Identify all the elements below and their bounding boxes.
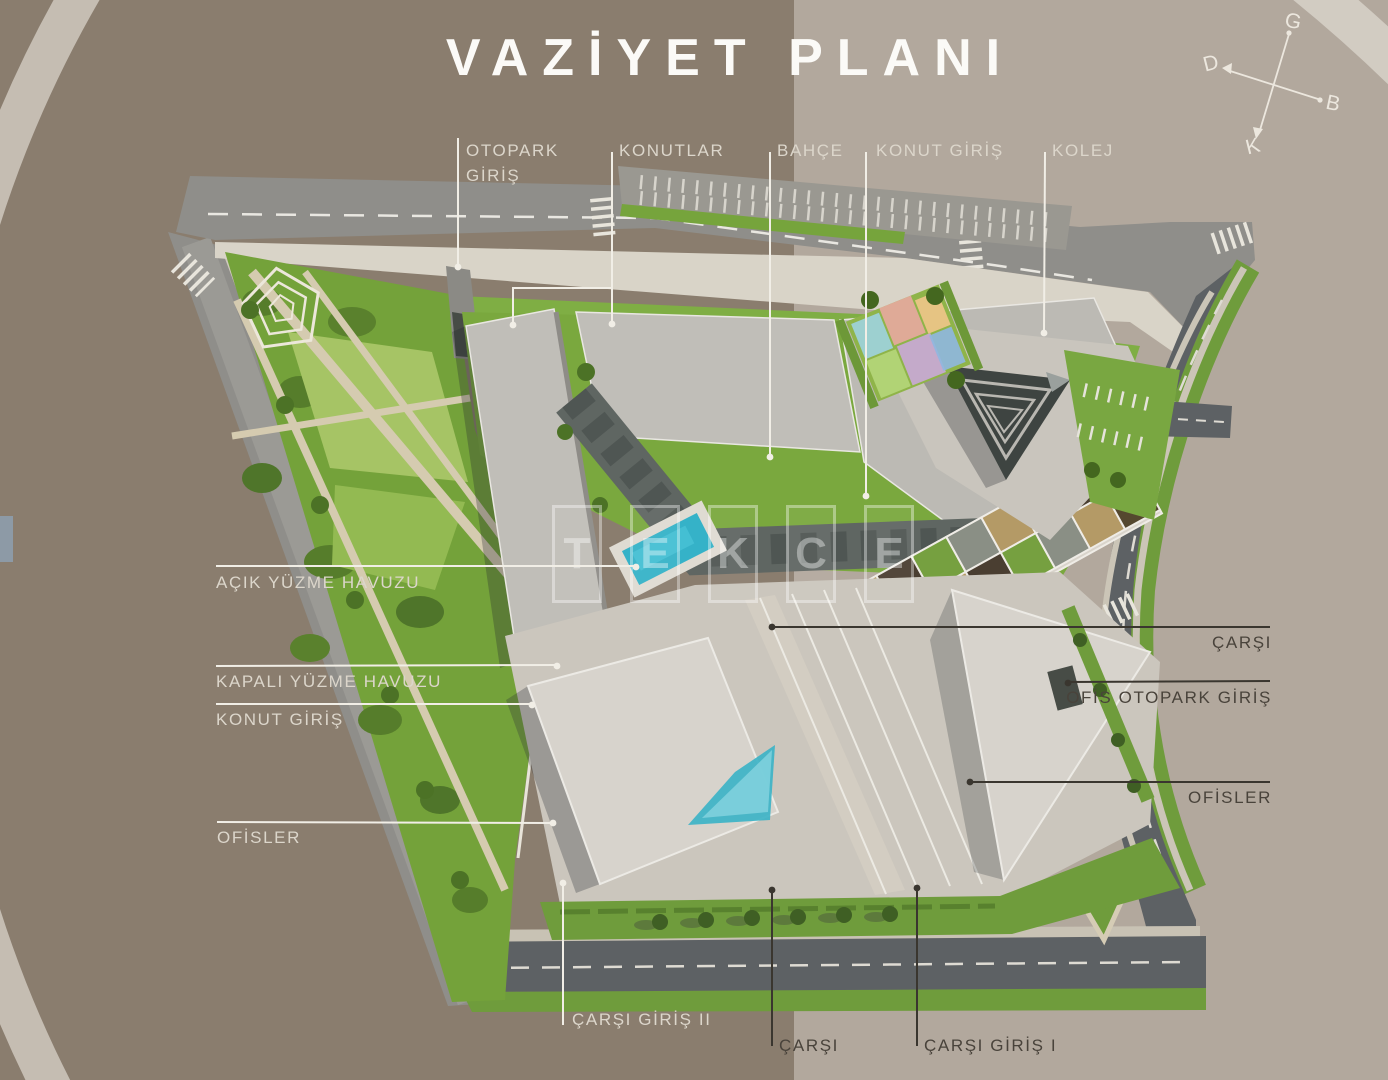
left-edge-tab [0, 516, 13, 562]
page-title: VAZİYET PLANI [440, 28, 1020, 88]
label-carsi-bottom: ÇARŞI [779, 1034, 839, 1059]
site-plan-page: T E K C E [0, 0, 1388, 1080]
watermark-letter-box: E [864, 505, 914, 603]
label-bahce: BAHÇE [777, 139, 844, 164]
park [225, 252, 548, 1002]
watermark-letter-box: K [708, 505, 758, 603]
left-road [168, 232, 508, 1006]
teal-canopy [688, 745, 775, 825]
label-otopark-giris: OTOPARK GİRİŞ [466, 139, 578, 188]
watermark: T E K C E [552, 505, 914, 603]
label-ofisler-right: OFİSLER [1188, 786, 1272, 811]
watermark-letter-box: C [786, 505, 836, 603]
label-kolej: KOLEJ [1052, 139, 1114, 164]
park-spiral-feature [239, 263, 325, 349]
watermark-letter-box: T [552, 505, 602, 603]
otopark-entrance-ramp [446, 266, 480, 360]
office-roof-west [528, 638, 778, 884]
label-konutlar: KONUTLAR [619, 139, 724, 164]
label-carsi-giris-1: ÇARŞI GİRİŞ I [924, 1034, 1057, 1059]
label-carsi-right: ÇARŞI [1212, 631, 1272, 656]
label-acik-yuzme-havuzu: AÇIK YÜZME HAVUZU [216, 571, 420, 596]
label-ofis-otopark-giris: OFİS OTOPARK GİRİŞ [1066, 686, 1272, 711]
label-konut-giris-left: KONUT GİRİŞ [216, 708, 344, 733]
label-carsi-giris-2: ÇARŞI GİRİŞ II [572, 1008, 712, 1033]
residential-roof-west [466, 309, 608, 662]
label-ofisler-left: OFİSLER [217, 826, 301, 851]
label-kapali-yuzme-havuzu: KAPALI YÜZME HAVUZU [216, 670, 442, 695]
watermark-letter-box: E [630, 505, 680, 603]
label-konut-giris-top: KONUT GİRİŞ [876, 139, 1004, 164]
